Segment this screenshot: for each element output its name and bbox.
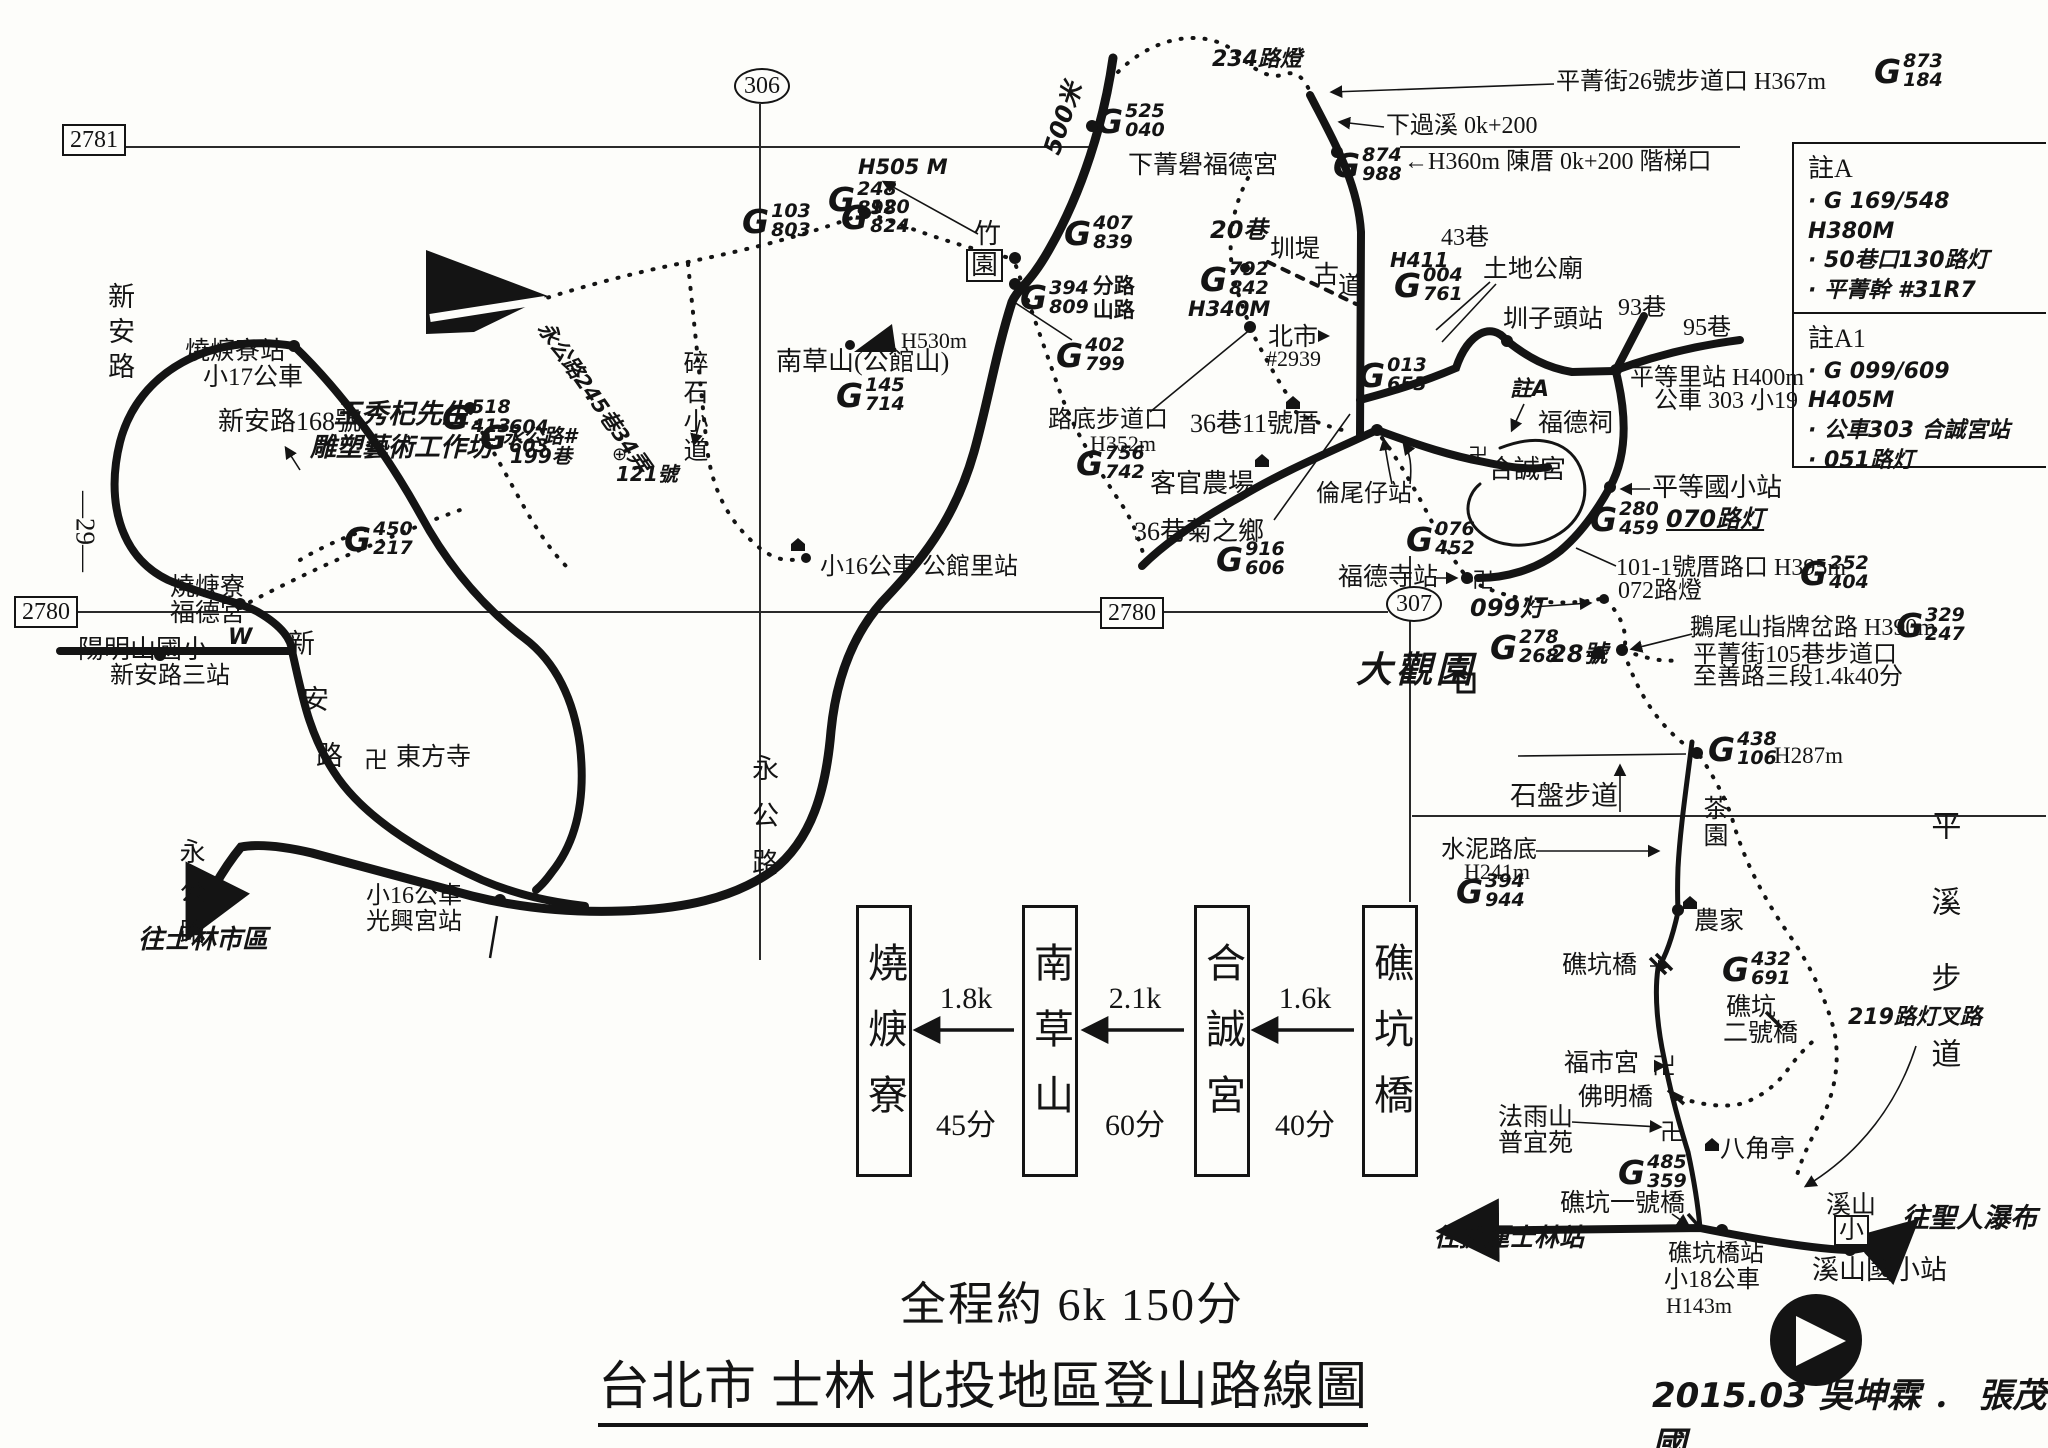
shaokengliao-fudegong-2: 福德宮 [170,600,245,627]
xinan-road-3rd-stop: 新安路三站 [110,664,230,690]
route-leg-distance-1: 1.8k [940,982,993,1016]
route-stop-4: 礁坑橋 [1362,905,1418,1177]
xinan-road-char1: 新 [288,630,315,659]
pingxi-trail: 平溪步道 [1926,810,1958,1114]
route-stop-2: 南草山 [1022,905,1078,1177]
xiaguoxi: 下過溪 0k+200 [1386,114,1538,140]
bus-16-a: 小16公車 [366,884,462,910]
route-stop-1: 燒焿寮 [856,905,912,1177]
jiaokeng-bridge: 礁坑橋 [1562,952,1637,979]
grid-ref-2781: 2781 [62,124,126,156]
lane-93: 93巷 [1618,296,1666,322]
zhishan-road-sec3: 至善路三段1.4k40分 [1693,665,1903,691]
g120-824: G120824 [841,198,910,237]
h287: H287m [1774,744,1843,769]
grid-ref-2780-left: 2780 [14,596,78,628]
xishan-xiao: 小 [1834,1215,1869,1246]
fushigong-temple: 福市宮 [1564,1050,1639,1077]
to-shilin-downtown: 往士林市區 [138,926,268,954]
note-section-0: 註A· G 169/548 H380M· 50巷口130路灯· 平菁幹 #31R… [1794,144,2046,312]
grid-ref-307: 307 [1386,586,1442,622]
g145-714: G145714 [836,376,905,415]
g407-839: G407839 [1064,214,1133,253]
g873-184: G873184 [1874,52,1943,91]
bus-17: 小17公車 [203,364,303,391]
h143: H143m [1666,1294,1732,1318]
fayushan-b: 普宜苑 [1498,1130,1573,1157]
svg-text:卍: 卍 [1472,569,1494,594]
g438-106: G438106 [1708,730,1777,769]
g874-988: G874988 [1333,146,1402,185]
suishi-path: 碎石小道 [680,350,707,466]
g792-842: G792842 [1200,260,1269,299]
note-item: · 051路灯 [1808,446,2036,476]
pingdeng-elementary-stop: 平等國小站 [1652,474,1782,502]
pingjing-st-26-trailhead: 平菁街26號步道口 H367m [1556,70,1826,96]
xinan-road-char2: 安 [302,686,329,715]
lamp-070: 070路灯 [1666,507,1764,533]
g394-809: G394809分路山路 [1020,274,1135,322]
zhu-char: 竹 [974,220,1001,249]
jiaokeng-bridge2-b: 二號橋 [1723,1020,1798,1047]
hechenggong-temple: 合誠宮 [1488,456,1566,484]
svg-text:卍: 卍 [1652,1052,1676,1080]
house-icons [791,330,1719,1151]
g013-653: G013653 [1358,356,1427,395]
xiajingque-fudegong: 下菁礐福德宮 [1128,152,1278,179]
yonggong-road-mid: 永公路 [748,754,777,895]
daguanyuan: 大觀園 [1356,652,1476,691]
lane36-house11: 36巷11號厝 [1190,410,1319,438]
to-shengren-waterfall: 往聖人瀑布 [1902,1204,2037,1233]
note-section-1: 註A1· G 099/609 H405M· 公車303 合誠宮站· 051路灯 [1794,312,2046,482]
note-item: · G 169/548 H380M [1808,187,2036,246]
g756-742: G756742 [1076,444,1145,483]
g518-413: G518413 [442,398,511,437]
g280-459: G280459 [1590,500,1659,539]
shaokengliao-station: 燒焿寮站 [185,338,285,365]
fudesi-station: 福德寺站 [1338,564,1438,591]
h505: H505 M [858,156,948,179]
note-section-title: 註A [1808,148,2036,185]
chencuo-steps: ←H360m 陳厝 0k+200 階梯口 [1404,150,1712,176]
route-leg-time-3: 40分 [1275,1100,1335,1144]
lane-43: 43巷 [1441,226,1489,252]
tudigong-temple: 土地公廟 [1483,256,1583,283]
g432-691: G432691 [1722,950,1791,989]
route-stop-3: 合誠宮 [1194,905,1250,1177]
lamp-099: 099灯 [1470,596,1544,622]
grid-ref-29: —29— [70,477,101,587]
note-item: · 平菁幹 #31R7 [1808,276,2036,306]
g394-944: G394944 [1456,872,1525,911]
shipan-trail: 石盤步道 [1510,782,1618,811]
author-signature: 2015.03 吳坤霖 ． 張茂國 [1652,1368,2048,1448]
lane-95: 95巷 [1683,316,1731,342]
note-item: · 公車303 合誠宮站 [1808,416,2036,446]
g402-799: G402799 [1056,336,1125,375]
zhunzitou-station: 圳子頭站 [1503,306,1603,333]
gudao-char2: 道 [1338,273,1363,300]
nongjia-farmhouse: 農家 [1694,908,1744,935]
xinan-road-char3: 路 [316,742,343,771]
jiaokengqiao-station: 礁坑橋站 [1668,1242,1764,1268]
bajiaoting-pavilion: 八角亭 [1720,1136,1795,1163]
guangxinggong-stop: 光興宮站 [366,910,462,936]
svg-text:卍: 卍 [1660,1118,1684,1146]
g252-404: G252404 [1800,554,1869,593]
svg-text:卍: 卍 [364,746,388,774]
bus-18: 小18公車 [1664,1268,1760,1294]
chayuan-tea-garden: 茶園 [1700,795,1727,849]
no-121: 121號 [616,464,678,486]
g329-247: G329247 [1896,606,1965,645]
notes-box: 註A· G 169/548 H380M· 50巷口130路灯· 平菁幹 #31R… [1792,142,2046,468]
h530: H530m [901,329,967,353]
summit-marks [426,250,896,352]
w-mark: W [228,626,252,650]
yangmingshan-elementary: 陽明山國小 [78,636,208,664]
xishan-elementary-stop: 溪山國小站 [1812,1256,1947,1285]
note-section-title: 註A1 [1808,318,2036,355]
note-item: · 50巷口130路灯 [1808,246,2036,276]
jiaokeng-bridge1: 礁坑一號橋 [1560,1190,1685,1217]
lamp-219: 219路灯叉路 [1848,1006,1982,1030]
fude-shrine: 福德祠 [1538,410,1613,437]
map-artwork: 卍 卍 卍 卍 卍 ⊕ [0,0,2048,1448]
route-leg-time-1: 45分 [936,1100,996,1144]
to-mrt-shilin: 往捷運士林站 [1434,1224,1584,1251]
g525-040: G525040 [1096,102,1165,141]
sculpture-studio: 雕塑藝術工作坊 [310,434,492,462]
lunweizi-station: 倫尾仔站 [1316,482,1412,508]
lamp-072: 072路燈 [1618,579,1702,605]
hiking-map-canvas: 卍 卍 卍 卍 卍 ⊕ 2781 306 2780 2780 307 —29— [0,0,2048,1448]
g916-606: G916606 [1216,540,1285,579]
bus16-gongguanli-stop: 小16公車 公館里站 [820,555,1018,581]
grid-ref-2780-mid: 2780 [1100,597,1164,629]
route-leg-time-2: 60分 [1105,1100,1165,1144]
route-leg-distance-3: 1.6k [1279,982,1332,1016]
bus-303: 公車 303 小19 [1654,389,1798,415]
lane-20: 20巷 [1210,218,1267,244]
gudao-char1: 古 [1314,262,1339,289]
fayushan-a: 法雨山 [1498,1104,1573,1131]
g485-359: G485359 [1618,1153,1687,1192]
g278-268: G278268 [1490,628,1559,667]
yuan-char: 園 [966,249,1003,282]
note-a-ref: 註A [1510,378,1549,402]
svg-text:卍: 卍 [1468,443,1488,467]
note-item: · G 099/609 H405M [1808,357,2036,416]
no-2939: #2939 [1266,347,1321,371]
dongfang-temple: 東方寺 [396,744,471,771]
foming-bridge: 佛明橋 [1578,1084,1653,1111]
h340: H340M [1188,298,1270,321]
shaokengliao-fudegong-1: 燒焿寮 [170,574,245,601]
g103-803: G103803 [742,202,811,241]
route-leg-distance-2: 2.1k [1109,982,1162,1016]
xinan-road-vert: 新安路 [104,282,133,387]
zhundi: 圳堤 [1270,236,1320,263]
total-distance-text: 全程約 6k 150分 [900,1268,1244,1334]
g004-761: G004761 [1394,266,1463,305]
keguan-farm: 客官農場 [1150,470,1254,498]
g450-217: G450217 [344,520,413,559]
grid-ref-306: 306 [734,68,790,104]
jiaokeng-bridge2-a: 礁坑 [1726,994,1776,1021]
map-title: 台北市 士林 北投地區登山路線圖 [598,1344,1368,1427]
lamp-234: 234路燈 [1212,48,1302,72]
g076-452: G076452 [1406,520,1475,559]
